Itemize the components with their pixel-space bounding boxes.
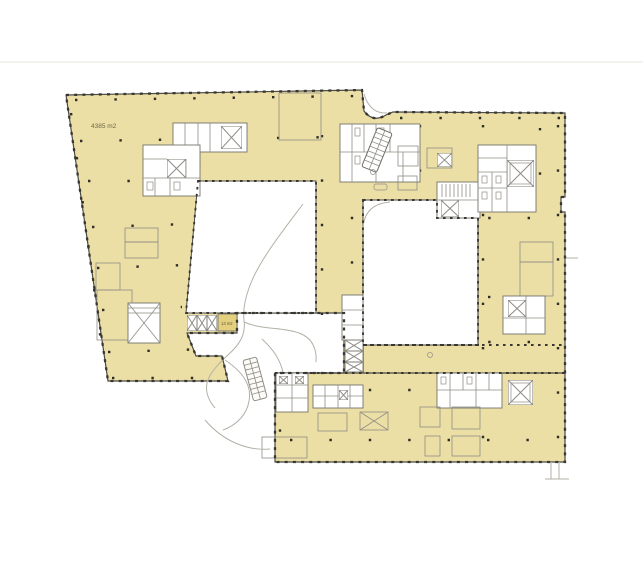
elevator-box-icon <box>221 126 242 149</box>
exterior-stair-mark <box>545 462 569 479</box>
area-label-small: 13 m2 <box>221 321 233 326</box>
canopy-curve <box>364 94 387 113</box>
elevator-box-icon <box>167 159 186 178</box>
area-label-main: 4385 m2 <box>91 123 117 130</box>
right-courtyard <box>363 200 478 345</box>
stair-exterior <box>243 357 267 401</box>
floor-plan-page: 4385 m2 13 m2 <box>0 0 643 571</box>
elevator-box-icon <box>508 380 533 405</box>
left-courtyard <box>186 181 316 313</box>
elevator-box-icon <box>441 200 459 217</box>
core-central-strip <box>342 295 363 340</box>
elevator-box-icon <box>507 160 534 187</box>
floor-plan-svg: 4385 m2 13 m2 <box>0 0 643 571</box>
core-bottom-mid <box>437 373 502 408</box>
